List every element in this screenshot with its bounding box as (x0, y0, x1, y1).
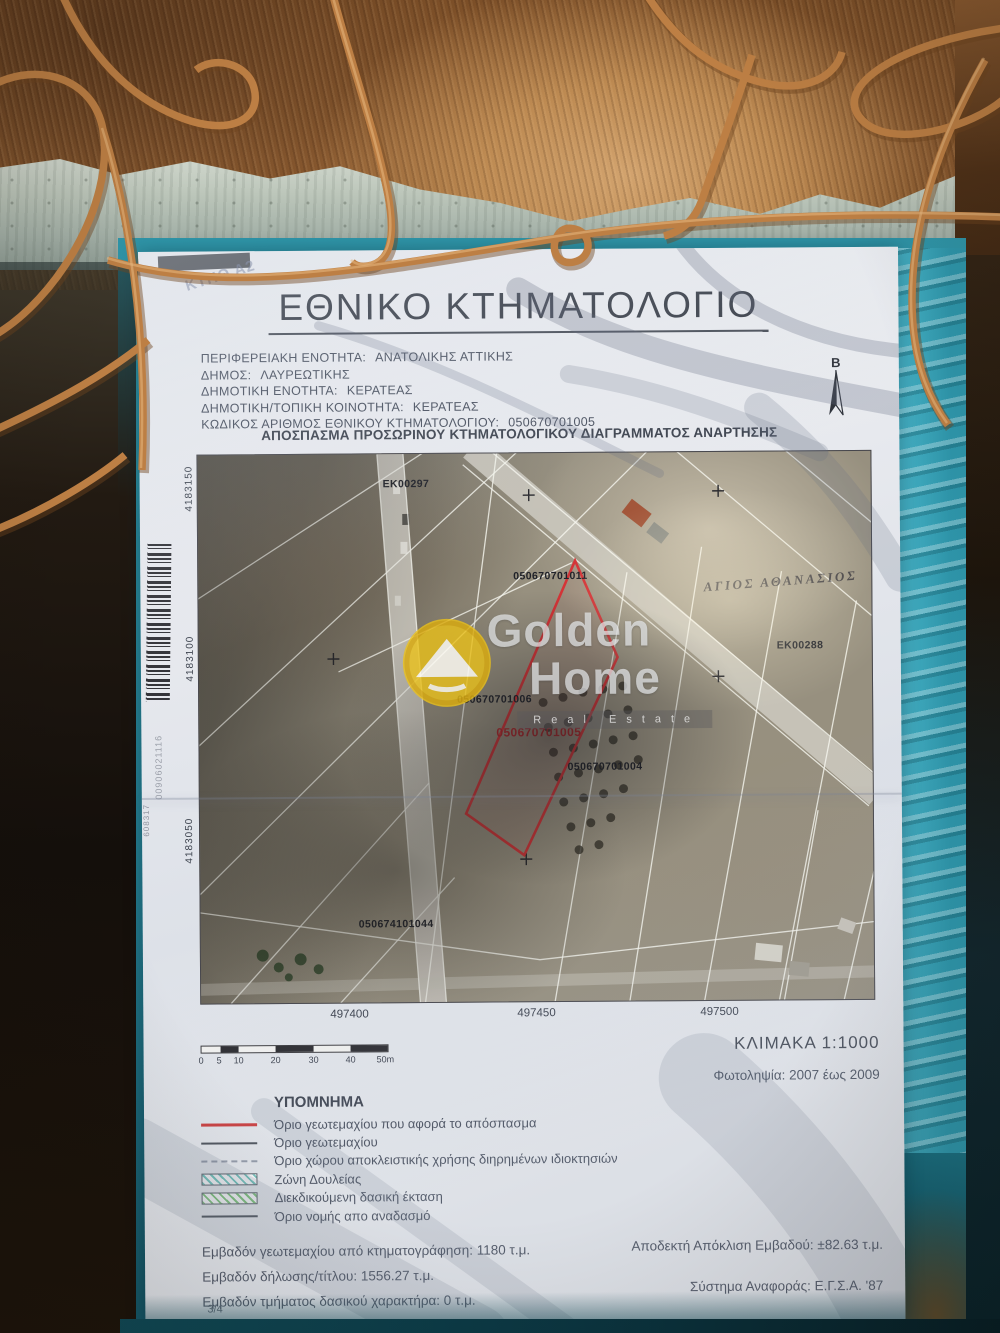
administrative-info: ΠΕΡΙΦΕΡΕΙΑΚΗ ΕΝΟΤΗΤΑ:ΑΝΑΤΟΛΙΚΗΣ ΑΤΤΙΚΗΣ … (201, 348, 596, 434)
dark-line-symbol (202, 1215, 258, 1217)
scale-bar: 0 5 10 20 30 40 50m (201, 1044, 389, 1065)
northing-label-bottom: 4183050 (184, 818, 195, 864)
dark-line-symbol (201, 1142, 257, 1144)
map-scale-text: ΚΛΙΜΑΚΑ 1:1000 (734, 1033, 880, 1054)
legend: Όριο γεωτεμαχίου που αφορά το απόσπασμα … (201, 1113, 618, 1226)
northing-label-top: 4183150 (183, 466, 194, 512)
red-line-symbol (201, 1123, 257, 1126)
easting-label: 497500 (700, 1006, 738, 1018)
shadowed-edge-left (0, 262, 136, 1333)
page-number: 3/4 (207, 1303, 222, 1315)
dashed-line-symbol (201, 1160, 257, 1162)
easting-label: 497400 (330, 1008, 368, 1020)
bushes (257, 949, 324, 981)
stat-line: Αποδεκτή Απόκλιση Εμβαδού: ±82.63 τ.μ. (553, 1237, 883, 1254)
bottom-shadow-strip (120, 1319, 1000, 1333)
teal-hatch-symbol (201, 1174, 257, 1186)
scale-bar-ticks: 0 5 10 20 30 40 50m (201, 1052, 389, 1065)
green-hatch-symbol (202, 1192, 258, 1204)
document-title: ΕΘΝΙΚΟ ΚΤΗΜΑΤΟΛΟΓΙΟ (138, 283, 898, 336)
legend-title: ΥΠΟΜΝΗΜΑ (274, 1093, 364, 1111)
north-arrow: Β (823, 357, 849, 422)
stat-line: Εμβαδόν δήλωσης/τίτλου: 1556.27 τ.μ. (202, 1262, 530, 1289)
barcode (146, 544, 172, 702)
outdoor-photo-scene: ΚΤΗΘ Α2 ΕΘΝΙΚΟ ΚΤΗΜΑΤΟΛΟΓΙΟ ΠΕΡΙΦΕΡΕΙΑΚΗ… (0, 0, 1000, 1333)
aerial-photo-dates: Φωτοληψία: 2007 έως 2009 (713, 1067, 879, 1083)
easting-label: 497450 (517, 1007, 555, 1019)
watermark-text: Home (529, 650, 661, 705)
golden-home-logo-icon (399, 615, 496, 712)
stat-line: Εμβαδόν γεωτεμαχίου από κτηματογράφηση: … (202, 1237, 530, 1264)
shadowed-edge-right (960, 255, 1000, 1333)
margin-code-a: 00906021116 (153, 735, 163, 800)
stat-line: Εμβαδόν τμήματος δασικού χαρακτήρα: 0 τ.… (202, 1287, 530, 1314)
parcel-code-label: 050674101044 (359, 918, 434, 931)
cadastral-map: EK00297 050670701011 ΑΓΙΟΣ ΑΘΑΝΑΣΙΟΣ EK0… (196, 450, 875, 1005)
cadastre-document-page: ΚΤΗΘ Α2 ΕΘΝΙΚΟ ΚΤΗΜΑΤΟΛΟΓΙΟ ΠΕΡΙΦΕΡΕΙΑΚΗ… (138, 247, 905, 1325)
legend-item: Όριο νομής απο αναδασμό (202, 1205, 618, 1226)
parcel-code-label: 050670701011 (513, 570, 587, 583)
golden-home-watermark: Golden Home Real Estate (348, 582, 729, 765)
northing-label-mid: 4183100 (185, 636, 196, 682)
watermark-text: Real Estate (517, 710, 712, 729)
parcel-code-label: EK00297 (383, 478, 430, 490)
stat-line: Σύστημα Αναφοράς: Ε.Γ.Σ.Α. '87 (553, 1278, 883, 1295)
road-bottom (197, 971, 874, 990)
north-arrow-icon (827, 369, 845, 417)
watermark-text: Golden (486, 602, 651, 657)
area-statistics: Εμβαδόν γεωτεμαχίου από κτηματογράφηση: … (202, 1237, 531, 1314)
parcel-code-label: EK00288 (777, 639, 824, 651)
margin-code-b: 608317 (142, 804, 151, 837)
tolerance-and-reference: Αποδεκτή Απόκλιση Εμβαδού: ±82.63 τ.μ. Σ… (553, 1237, 883, 1295)
